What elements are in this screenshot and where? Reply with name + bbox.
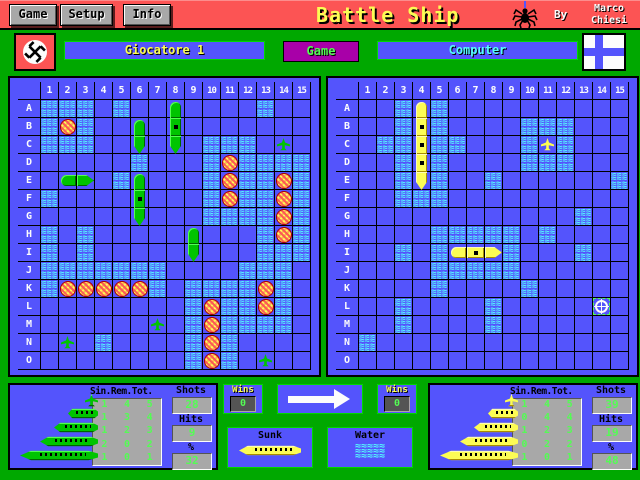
cell-O4[interactable]	[413, 352, 431, 370]
cell-H14[interactable]	[593, 226, 611, 244]
water-miss-icon: ≈≈≈≈≈≈≈≈≈≈≈≈	[203, 209, 220, 225]
cell-N2[interactable]	[377, 334, 395, 352]
cell-L12[interactable]	[557, 298, 575, 316]
cell-I1[interactable]	[359, 244, 377, 262]
cell-B6	[131, 118, 149, 136]
cell-D2[interactable]	[377, 154, 395, 172]
cell-G4[interactable]	[413, 208, 431, 226]
col-header-13: 13	[575, 82, 593, 100]
setup-menu-button[interactable]: Setup	[60, 4, 113, 26]
cell-D10[interactable]: ≈≈≈≈≈≈≈≈≈≈≈≈	[521, 154, 539, 172]
cell-B14[interactable]	[593, 118, 611, 136]
col-header-4: 4	[413, 82, 431, 100]
cell-K6[interactable]	[449, 280, 467, 298]
cell-D7[interactable]	[467, 154, 485, 172]
cell-G9[interactable]	[503, 208, 521, 226]
cell-B6[interactable]	[449, 118, 467, 136]
cell-G10[interactable]	[521, 208, 539, 226]
cell-N7[interactable]	[467, 334, 485, 352]
water-miss-icon: ≈≈≈≈≈≈≈≈≈≈≈≈	[257, 263, 274, 279]
cell-J10	[203, 262, 221, 280]
cell-F8[interactable]	[485, 190, 503, 208]
cell-C10[interactable]: ≈≈≈≈≈≈≈≈≈≈≈≈	[521, 136, 539, 154]
cell-L14[interactable]	[593, 298, 611, 316]
cell-M13[interactable]	[575, 316, 593, 334]
cell-J5[interactable]: ≈≈≈≈≈≈≈≈≈≈≈≈	[431, 262, 449, 280]
cell-A7[interactable]	[467, 100, 485, 118]
cell-I5	[113, 244, 131, 262]
cell-D12[interactable]: ≈≈≈≈≈≈≈≈≈≈≈≈	[557, 154, 575, 172]
cell-A4[interactable]	[413, 100, 431, 118]
cell-J10[interactable]	[521, 262, 539, 280]
cell-K9[interactable]	[503, 280, 521, 298]
cell-N13[interactable]	[575, 334, 593, 352]
cell-J13[interactable]	[575, 262, 593, 280]
cell-F2[interactable]	[377, 190, 395, 208]
water-miss-icon: ≈≈≈≈≈≈≈≈≈≈≈≈	[185, 335, 202, 351]
cell-C13[interactable]	[575, 136, 593, 154]
water-miss-icon: ≈≈≈≈≈≈≈≈≈≈≈≈	[521, 137, 538, 153]
cell-E7[interactable]	[467, 172, 485, 190]
cell-J4[interactable]	[413, 262, 431, 280]
cell-I7[interactable]	[467, 244, 485, 262]
cell-A14[interactable]	[593, 100, 611, 118]
cell-K10[interactable]: ≈≈≈≈≈≈≈≈≈≈≈≈	[521, 280, 539, 298]
cell-E12[interactable]	[557, 172, 575, 190]
cell-L2[interactable]	[377, 298, 395, 316]
cell-D14[interactable]	[593, 154, 611, 172]
cell-C6[interactable]: ≈≈≈≈≈≈≈≈≈≈≈≈	[449, 136, 467, 154]
cell-L5[interactable]	[431, 298, 449, 316]
cell-I10	[203, 244, 221, 262]
water-miss-icon: ≈≈≈≈≈≈≈≈≈≈≈≈	[257, 227, 274, 243]
cell-E2[interactable]	[377, 172, 395, 190]
cell-E13[interactable]	[575, 172, 593, 190]
water-miss-icon: ≈≈≈≈≈≈≈≈≈≈≈≈	[203, 155, 220, 171]
explosion-hit-icon	[276, 209, 292, 225]
cell-C1[interactable]	[359, 136, 377, 154]
water-miss-icon: ≈≈≈≈≈≈≈≈≈≈≈≈	[131, 263, 148, 279]
cell-C12[interactable]: ≈≈≈≈≈≈≈≈≈≈≈≈	[557, 136, 575, 154]
cell-E9[interactable]	[503, 172, 521, 190]
cell-I9[interactable]: ≈≈≈≈≈≈≈≈≈≈≈≈	[503, 244, 521, 262]
aim-cursor-icon	[593, 298, 610, 315]
cell-E6[interactable]	[449, 172, 467, 190]
cell-D6[interactable]	[449, 154, 467, 172]
cell-M9[interactable]	[503, 316, 521, 334]
cell-I4[interactable]	[413, 244, 431, 262]
cell-M7[interactable]	[467, 316, 485, 334]
cell-O9[interactable]	[503, 352, 521, 370]
cell-O3[interactable]	[395, 352, 413, 370]
cell-D15[interactable]	[611, 154, 629, 172]
cell-C7[interactable]	[467, 136, 485, 154]
cell-N12[interactable]	[557, 334, 575, 352]
cell-M2[interactable]	[377, 316, 395, 334]
cell-A13[interactable]	[575, 100, 593, 118]
cell-C14[interactable]	[593, 136, 611, 154]
cell-A15[interactable]	[611, 100, 629, 118]
cell-O13[interactable]	[575, 352, 593, 370]
cell-D3[interactable]: ≈≈≈≈≈≈≈≈≈≈≈≈	[395, 154, 413, 172]
cell-L11: ≈≈≈≈≈≈≈≈≈≈≈≈	[221, 298, 239, 316]
cell-M9: ≈≈≈≈≈≈≈≈≈≈≈≈	[185, 316, 203, 334]
cell-B1[interactable]	[359, 118, 377, 136]
cell-N4[interactable]	[413, 334, 431, 352]
water-miss-icon: ≈≈≈≈≈≈≈≈≈≈≈≈	[485, 299, 502, 315]
cell-L3[interactable]: ≈≈≈≈≈≈≈≈≈≈≈≈	[395, 298, 413, 316]
cell-I5[interactable]: ≈≈≈≈≈≈≈≈≈≈≈≈	[431, 244, 449, 262]
cell-B7[interactable]	[467, 118, 485, 136]
cell-C11[interactable]	[539, 136, 557, 154]
cell-G11[interactable]	[539, 208, 557, 226]
cell-H2[interactable]	[377, 226, 395, 244]
cell-M1	[41, 316, 59, 334]
cell-F6[interactable]	[449, 190, 467, 208]
water-miss-icon: ≈≈≈≈≈≈≈≈≈≈≈≈	[395, 317, 412, 333]
cell-A5[interactable]: ≈≈≈≈≈≈≈≈≈≈≈≈	[431, 100, 449, 118]
explosion-hit-icon	[276, 191, 292, 207]
cell-A6[interactable]	[449, 100, 467, 118]
cell-M11[interactable]	[539, 316, 557, 334]
cell-O5[interactable]	[431, 352, 449, 370]
water-miss-icon: ≈≈≈≈≈≈≈≈≈≈≈≈	[203, 173, 220, 189]
cell-I2[interactable]	[377, 244, 395, 262]
cell-C3[interactable]: ≈≈≈≈≈≈≈≈≈≈≈≈	[395, 136, 413, 154]
cell-F7[interactable]	[467, 190, 485, 208]
cell-B9[interactable]	[503, 118, 521, 136]
cell-M12[interactable]	[557, 316, 575, 334]
water-miss-icon: ≈≈≈≈≈≈≈≈≈≈≈≈	[95, 335, 112, 351]
cell-H9[interactable]: ≈≈≈≈≈≈≈≈≈≈≈≈	[503, 226, 521, 244]
cell-H5[interactable]: ≈≈≈≈≈≈≈≈≈≈≈≈	[431, 226, 449, 244]
cell-E1[interactable]	[359, 172, 377, 190]
water-miss-icon: ≈≈≈≈≈≈≈≈≈≈≈≈	[113, 173, 130, 189]
cell-E10[interactable]	[521, 172, 539, 190]
cell-B15[interactable]	[611, 118, 629, 136]
cell-B13[interactable]	[575, 118, 593, 136]
cell-M8	[167, 316, 185, 334]
cell-N3[interactable]	[395, 334, 413, 352]
cell-E9	[185, 172, 203, 190]
water-miss-icon: ≈≈≈≈≈≈≈≈≈≈≈≈	[149, 263, 166, 279]
cell-F6	[131, 190, 149, 208]
cell-O1[interactable]	[359, 352, 377, 370]
cell-A3[interactable]: ≈≈≈≈≈≈≈≈≈≈≈≈	[395, 100, 413, 118]
cell-N8	[167, 334, 185, 352]
cell-O8[interactable]	[485, 352, 503, 370]
water-label: Water	[328, 430, 412, 441]
col-header-12: 12	[239, 82, 257, 100]
cell-H3[interactable]	[395, 226, 413, 244]
cell-M1[interactable]	[359, 316, 377, 334]
water-miss-icon: ≈≈≈≈≈≈≈≈≈≈≈≈	[149, 281, 166, 297]
cell-I15[interactable]	[611, 244, 629, 262]
cell-B10[interactable]: ≈≈≈≈≈≈≈≈≈≈≈≈	[521, 118, 539, 136]
cell-A8[interactable]	[485, 100, 503, 118]
cell-H11[interactable]: ≈≈≈≈≈≈≈≈≈≈≈≈	[539, 226, 557, 244]
cell-O14[interactable]	[593, 352, 611, 370]
cell-C2[interactable]: ≈≈≈≈≈≈≈≈≈≈≈≈	[377, 136, 395, 154]
cell-L1[interactable]	[359, 298, 377, 316]
cell-K12[interactable]	[557, 280, 575, 298]
cell-I11[interactable]	[539, 244, 557, 262]
cell-G13[interactable]: ≈≈≈≈≈≈≈≈≈≈≈≈	[575, 208, 593, 226]
cell-C4	[95, 136, 113, 154]
cell-B11[interactable]: ≈≈≈≈≈≈≈≈≈≈≈≈	[539, 118, 557, 136]
cell-M3	[77, 316, 95, 334]
ship-segment	[134, 136, 145, 154]
cell-G5[interactable]	[431, 208, 449, 226]
cell-N10	[203, 334, 221, 352]
cell-G8[interactable]	[485, 208, 503, 226]
cell-F15[interactable]	[611, 190, 629, 208]
cell-F1[interactable]	[359, 190, 377, 208]
cell-C5[interactable]: ≈≈≈≈≈≈≈≈≈≈≈≈	[431, 136, 449, 154]
cell-O7[interactable]	[467, 352, 485, 370]
cell-B5[interactable]: ≈≈≈≈≈≈≈≈≈≈≈≈	[431, 118, 449, 136]
cell-M3[interactable]: ≈≈≈≈≈≈≈≈≈≈≈≈	[395, 316, 413, 334]
cell-N3	[77, 334, 95, 352]
row-header-L: L	[18, 298, 41, 316]
cell-J6[interactable]: ≈≈≈≈≈≈≈≈≈≈≈≈	[449, 262, 467, 280]
cell-E11[interactable]	[539, 172, 557, 190]
cell-C15[interactable]	[611, 136, 629, 154]
water-miss-icon: ≈≈≈≈≈≈≈≈≈≈≈≈	[611, 173, 628, 189]
cell-A10[interactable]	[521, 100, 539, 118]
water-miss-icon: ≈≈≈≈≈≈≈≈≈≈≈≈	[275, 281, 292, 297]
cell-O10[interactable]	[521, 352, 539, 370]
cell-B2[interactable]	[377, 118, 395, 136]
fleet-table-header: Sin.Rem.Tot.	[90, 386, 166, 397]
info-menu-button[interactable]: Info	[123, 4, 171, 26]
cell-I3[interactable]: ≈≈≈≈≈≈≈≈≈≈≈≈	[395, 244, 413, 262]
cell-L8[interactable]: ≈≈≈≈≈≈≈≈≈≈≈≈	[485, 298, 503, 316]
cell-H10[interactable]	[521, 226, 539, 244]
cell-J2[interactable]	[377, 262, 395, 280]
cell-D11[interactable]: ≈≈≈≈≈≈≈≈≈≈≈≈	[539, 154, 557, 172]
by-label: By	[554, 8, 567, 21]
cell-K7[interactable]	[467, 280, 485, 298]
cell-K3[interactable]	[395, 280, 413, 298]
cell-D8[interactable]	[485, 154, 503, 172]
cell-J1[interactable]	[359, 262, 377, 280]
water-miss-icon: ≈≈≈≈≈≈≈≈≈≈≈≈	[275, 263, 292, 279]
cell-L9[interactable]	[503, 298, 521, 316]
cell-D9[interactable]	[503, 154, 521, 172]
cell-I12[interactable]	[557, 244, 575, 262]
cell-F11[interactable]	[539, 190, 557, 208]
water-miss-icon: ≈≈≈≈≈≈≈≈≈≈≈≈	[503, 227, 520, 243]
cell-A1[interactable]	[359, 100, 377, 118]
cell-B8[interactable]	[485, 118, 503, 136]
water-miss-icon: ≈≈≈≈≈≈≈≈≈≈≈≈	[575, 209, 592, 225]
cell-I14[interactable]	[593, 244, 611, 262]
cell-K1[interactable]	[359, 280, 377, 298]
cell-H12[interactable]	[557, 226, 575, 244]
cell-E5: ≈≈≈≈≈≈≈≈≈≈≈≈	[113, 172, 131, 190]
cell-O12[interactable]	[557, 352, 575, 370]
water-miss-icon: ≈≈≈≈≈≈≈≈≈≈≈≈	[431, 155, 448, 171]
cell-B4[interactable]	[413, 118, 431, 136]
cell-K4	[95, 280, 113, 298]
cell-M10[interactable]	[521, 316, 539, 334]
cell-F15: ≈≈≈≈≈≈≈≈≈≈≈≈	[293, 190, 311, 208]
cell-L7[interactable]	[467, 298, 485, 316]
cell-L6[interactable]	[449, 298, 467, 316]
cell-M6[interactable]	[449, 316, 467, 334]
cell-E3[interactable]: ≈≈≈≈≈≈≈≈≈≈≈≈	[395, 172, 413, 190]
cell-G14[interactable]	[593, 208, 611, 226]
cell-G7[interactable]	[467, 208, 485, 226]
cell-G2[interactable]	[377, 208, 395, 226]
cell-J3[interactable]	[395, 262, 413, 280]
cell-D5[interactable]: ≈≈≈≈≈≈≈≈≈≈≈≈	[431, 154, 449, 172]
cell-H13[interactable]	[575, 226, 593, 244]
cell-L10[interactable]	[521, 298, 539, 316]
cell-N15[interactable]	[611, 334, 629, 352]
cell-B3[interactable]: ≈≈≈≈≈≈≈≈≈≈≈≈	[395, 118, 413, 136]
cell-N5[interactable]	[431, 334, 449, 352]
cell-N9[interactable]	[503, 334, 521, 352]
cell-F13[interactable]	[575, 190, 593, 208]
col-header-15: 15	[611, 82, 629, 100]
cell-I13[interactable]: ≈≈≈≈≈≈≈≈≈≈≈≈	[575, 244, 593, 262]
water-waves-icon: ≈≈≈≈≈ ≈≈≈≈≈ ≈≈≈≈≈	[328, 444, 412, 459]
cell-H7[interactable]: ≈≈≈≈≈≈≈≈≈≈≈≈	[467, 226, 485, 244]
cell-J7[interactable]: ≈≈≈≈≈≈≈≈≈≈≈≈	[467, 262, 485, 280]
cell-A2[interactable]	[377, 100, 395, 118]
cell-E5[interactable]: ≈≈≈≈≈≈≈≈≈≈≈≈	[431, 172, 449, 190]
cell-N6[interactable]	[449, 334, 467, 352]
cell-N1[interactable]: ≈≈≈≈≈≈≈≈≈≈≈≈	[359, 334, 377, 352]
water-miss-icon: ≈≈≈≈≈≈≈≈≈≈≈≈	[77, 137, 94, 153]
cell-L15[interactable]	[611, 298, 629, 316]
cell-J8[interactable]: ≈≈≈≈≈≈≈≈≈≈≈≈	[485, 262, 503, 280]
cell-N14[interactable]	[593, 334, 611, 352]
cell-M4[interactable]	[413, 316, 431, 334]
cell-L13[interactable]	[575, 298, 593, 316]
cell-F14[interactable]	[593, 190, 611, 208]
cell-O15[interactable]	[611, 352, 629, 370]
cell-M15[interactable]	[611, 316, 629, 334]
cell-H6[interactable]: ≈≈≈≈≈≈≈≈≈≈≈≈	[449, 226, 467, 244]
cell-F12: ≈≈≈≈≈≈≈≈≈≈≈≈	[239, 190, 257, 208]
game-menu-button[interactable]: Game	[9, 4, 57, 26]
cell-K13[interactable]	[575, 280, 593, 298]
cell-K4[interactable]	[413, 280, 431, 298]
cell-H15[interactable]	[611, 226, 629, 244]
cell-F9[interactable]	[503, 190, 521, 208]
cell-N7	[149, 334, 167, 352]
cell-K14[interactable]	[593, 280, 611, 298]
cell-G12[interactable]	[557, 208, 575, 226]
cell-A11[interactable]	[539, 100, 557, 118]
player1-shots-count: 28	[172, 397, 212, 414]
ship-segment	[77, 175, 94, 186]
cell-C9[interactable]	[503, 136, 521, 154]
cell-E15[interactable]: ≈≈≈≈≈≈≈≈≈≈≈≈	[611, 172, 629, 190]
game-status-button[interactable]: Game	[283, 41, 359, 62]
cell-J15[interactable]	[611, 262, 629, 280]
cell-M8[interactable]: ≈≈≈≈≈≈≈≈≈≈≈≈	[485, 316, 503, 334]
cell-D4[interactable]	[413, 154, 431, 172]
cell-O2[interactable]	[377, 352, 395, 370]
cell-J14[interactable]	[593, 262, 611, 280]
cell-G6[interactable]	[449, 208, 467, 226]
cell-G3[interactable]	[395, 208, 413, 226]
cell-O6[interactable]	[449, 352, 467, 370]
cell-D13[interactable]	[575, 154, 593, 172]
cell-J12[interactable]	[557, 262, 575, 280]
cell-J6: ≈≈≈≈≈≈≈≈≈≈≈≈	[131, 262, 149, 280]
cell-K5[interactable]: ≈≈≈≈≈≈≈≈≈≈≈≈	[431, 280, 449, 298]
cell-I4	[95, 244, 113, 262]
water-miss-icon: ≈≈≈≈≈≈≈≈≈≈≈≈	[41, 245, 58, 261]
cell-A2: ≈≈≈≈≈≈≈≈≈≈≈≈	[59, 100, 77, 118]
cell-B14	[275, 118, 293, 136]
cell-M5[interactable]	[431, 316, 449, 334]
cell-F4[interactable]: ≈≈≈≈≈≈≈≈≈≈≈≈	[413, 190, 431, 208]
cell-F5[interactable]: ≈≈≈≈≈≈≈≈≈≈≈≈	[431, 190, 449, 208]
cell-K11[interactable]	[539, 280, 557, 298]
cell-E4[interactable]	[413, 172, 431, 190]
water-miss-icon: ≈≈≈≈≈≈≈≈≈≈≈≈	[221, 299, 238, 315]
cell-N8[interactable]	[485, 334, 503, 352]
cell-G1[interactable]	[359, 208, 377, 226]
cell-K15[interactable]	[611, 280, 629, 298]
cell-H1[interactable]	[359, 226, 377, 244]
cell-F10[interactable]	[521, 190, 539, 208]
cell-K2[interactable]	[377, 280, 395, 298]
cell-C4[interactable]	[413, 136, 431, 154]
cell-J11[interactable]	[539, 262, 557, 280]
water-miss-icon: ≈≈≈≈≈≈≈≈≈≈≈≈	[185, 281, 202, 297]
cell-J14: ≈≈≈≈≈≈≈≈≈≈≈≈	[275, 262, 293, 280]
cell-A9[interactable]	[503, 100, 521, 118]
cell-I8[interactable]	[485, 244, 503, 262]
col-header-9: 9	[503, 82, 521, 100]
cell-E8[interactable]: ≈≈≈≈≈≈≈≈≈≈≈≈	[485, 172, 503, 190]
cell-O4	[95, 352, 113, 370]
cell-D1	[41, 154, 59, 172]
cell-I6[interactable]	[449, 244, 467, 262]
explosion-hit-icon	[276, 173, 292, 189]
cell-L11[interactable]	[539, 298, 557, 316]
cell-N10[interactable]	[521, 334, 539, 352]
cell-J9[interactable]: ≈≈≈≈≈≈≈≈≈≈≈≈	[503, 262, 521, 280]
cell-D1[interactable]	[359, 154, 377, 172]
cell-I10[interactable]	[521, 244, 539, 262]
cell-M14[interactable]	[593, 316, 611, 334]
cell-C8[interactable]	[485, 136, 503, 154]
cell-D7	[149, 154, 167, 172]
cell-G15[interactable]	[611, 208, 629, 226]
cell-A12[interactable]	[557, 100, 575, 118]
cell-B12[interactable]: ≈≈≈≈≈≈≈≈≈≈≈≈	[557, 118, 575, 136]
cell-H8[interactable]: ≈≈≈≈≈≈≈≈≈≈≈≈	[485, 226, 503, 244]
cell-K8[interactable]	[485, 280, 503, 298]
cell-F12[interactable]	[557, 190, 575, 208]
cell-F3[interactable]: ≈≈≈≈≈≈≈≈≈≈≈≈	[395, 190, 413, 208]
cell-N11[interactable]	[539, 334, 557, 352]
water-miss-icon: ≈≈≈≈≈≈≈≈≈≈≈≈	[293, 245, 310, 261]
cell-O11[interactable]	[539, 352, 557, 370]
cell-L4[interactable]	[413, 298, 431, 316]
water-miss-icon: ≈≈≈≈≈≈≈≈≈≈≈≈	[41, 137, 58, 153]
cell-H4[interactable]	[413, 226, 431, 244]
cell-E14[interactable]	[593, 172, 611, 190]
